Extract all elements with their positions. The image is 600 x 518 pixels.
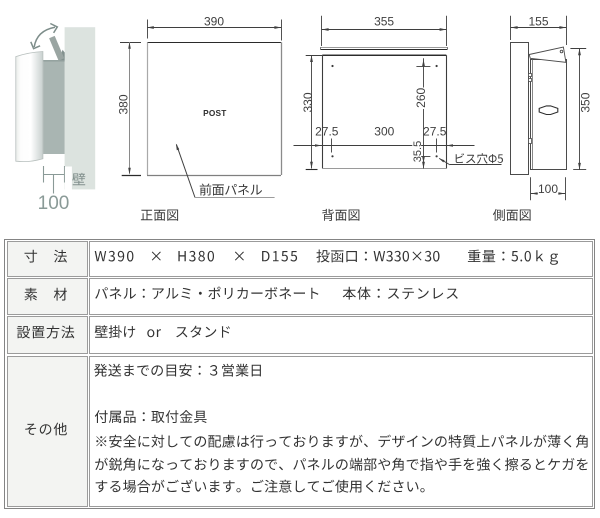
svg-text:260: 260 bbox=[414, 87, 428, 107]
svg-text:100: 100 bbox=[538, 182, 558, 196]
svg-text:POST: POST bbox=[203, 108, 226, 118]
svg-text:35.5: 35.5 bbox=[412, 141, 424, 162]
svg-text:380: 380 bbox=[116, 94, 130, 114]
svg-text:390: 390 bbox=[204, 14, 224, 28]
svg-text:355: 355 bbox=[374, 15, 394, 29]
svg-text:100: 100 bbox=[38, 193, 70, 214]
svg-text:300: 300 bbox=[374, 124, 394, 138]
svg-text:155: 155 bbox=[528, 15, 548, 29]
svg-text:330: 330 bbox=[301, 92, 315, 112]
svg-text:27.5: 27.5 bbox=[315, 124, 339, 138]
svg-text:27.5: 27.5 bbox=[423, 124, 447, 138]
svg-text:350: 350 bbox=[578, 92, 592, 112]
